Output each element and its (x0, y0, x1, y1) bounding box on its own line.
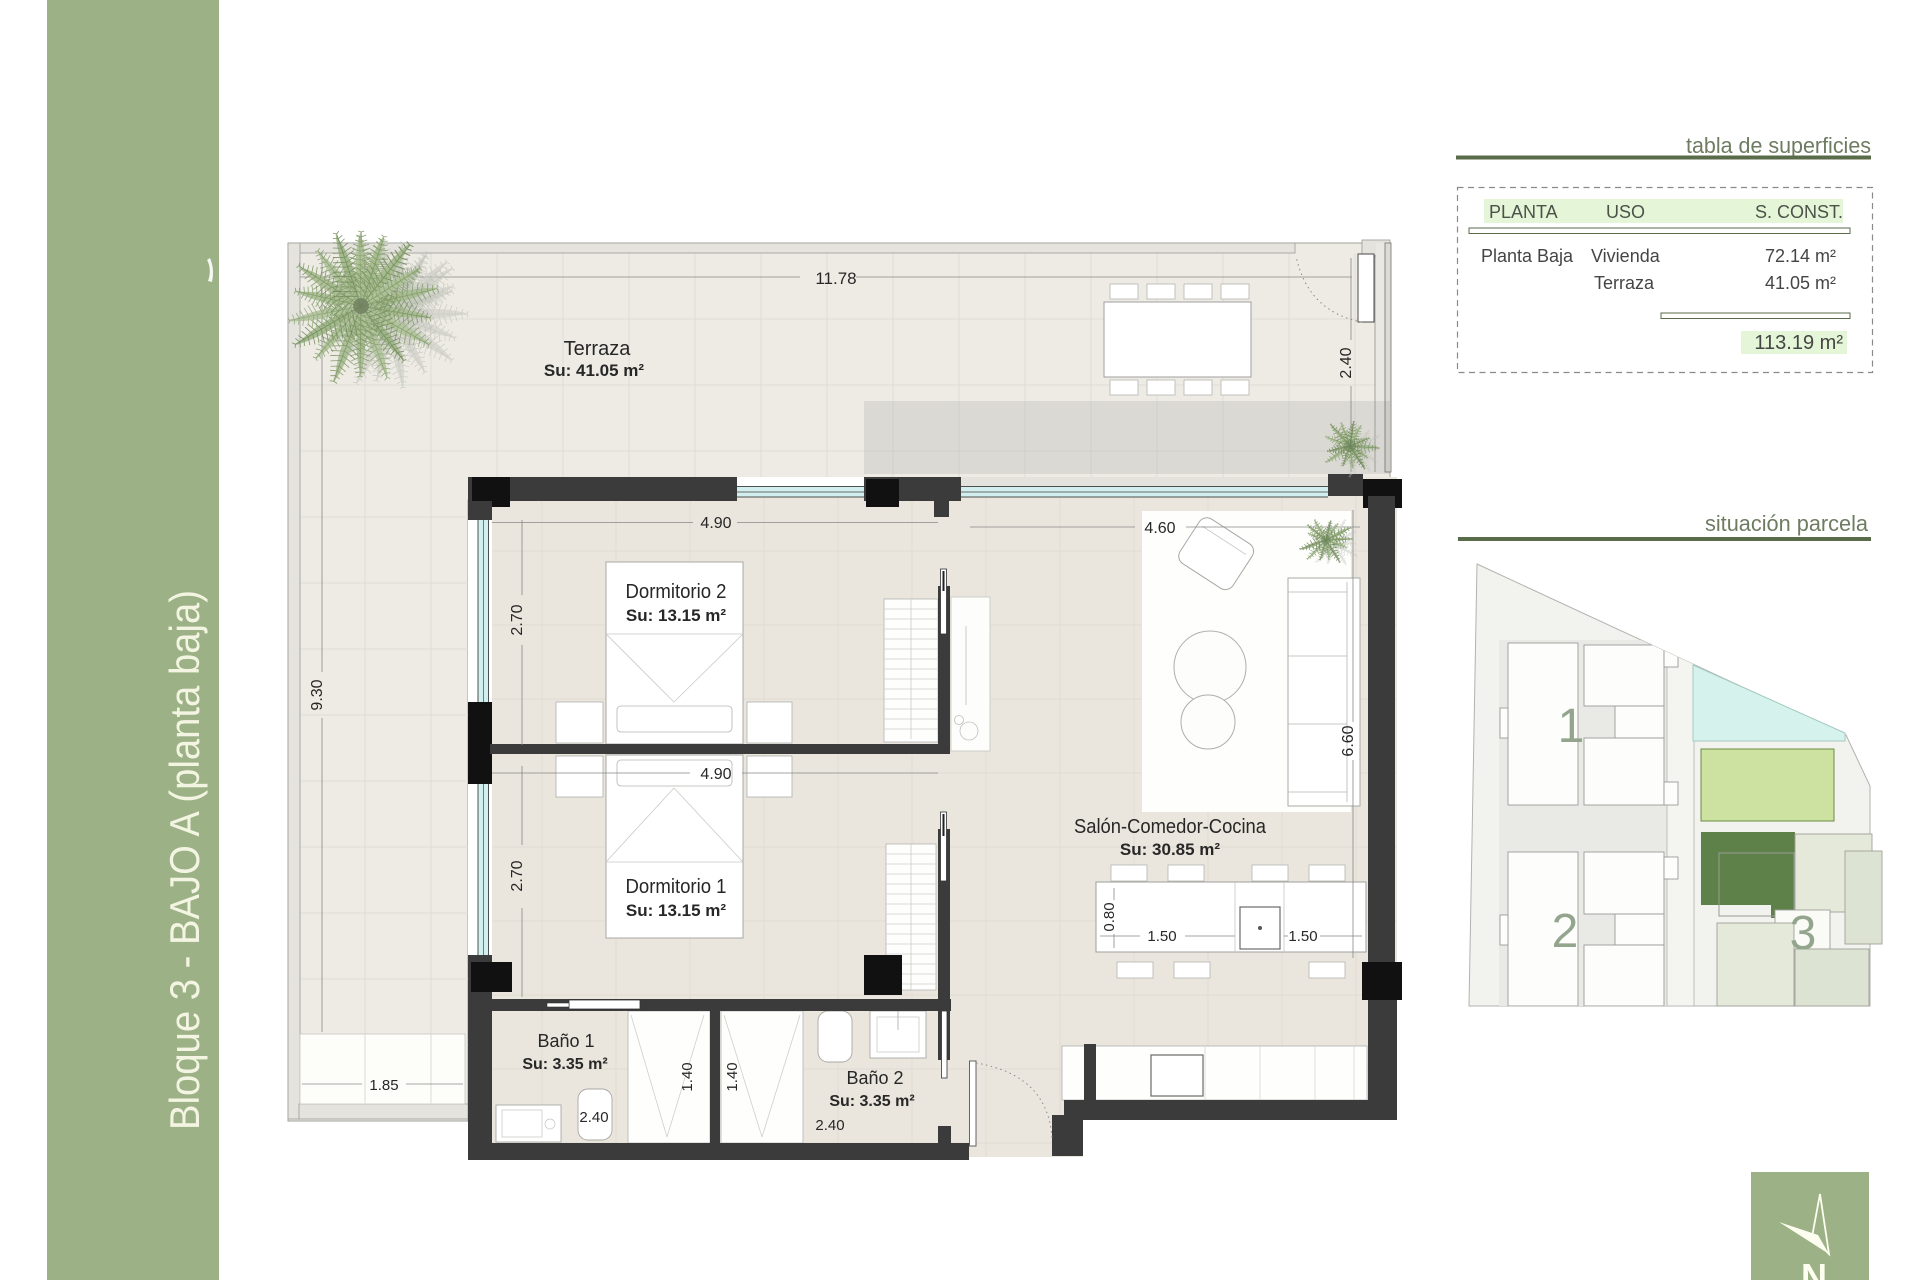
svg-text:2.40: 2.40 (579, 1109, 608, 1126)
svg-text:Dormitorio 2: Dormitorio 2 (626, 581, 727, 603)
svg-text:Baño 1: Baño 1 (537, 1031, 594, 1051)
svg-text:Su: 30.85 m²: Su: 30.85 m² (1120, 840, 1220, 859)
svg-text:Su: 3.35 m²: Su: 3.35 m² (829, 1093, 914, 1110)
svg-text:3: 3 (1790, 907, 1817, 960)
svg-text:N: N (1801, 1256, 1827, 1280)
svg-text:Salón-Comedor-Cocina: Salón-Comedor-Cocina (1074, 816, 1267, 838)
svg-text:Vivienda: Vivienda (1591, 246, 1661, 266)
svg-text:4.90: 4.90 (700, 515, 731, 532)
svg-text:1.85: 1.85 (369, 1077, 398, 1094)
svg-text:2.40: 2.40 (815, 1117, 844, 1134)
svg-text:72.14 m²: 72.14 m² (1765, 246, 1836, 266)
svg-text:2: 2 (1552, 905, 1579, 958)
svg-text:USO: USO (1606, 202, 1645, 222)
svg-text:1.40: 1.40 (679, 1062, 696, 1091)
svg-text:2.40: 2.40 (1338, 347, 1355, 378)
svg-text:Planta Baja: Planta Baja (1481, 246, 1574, 266)
svg-text:1.50: 1.50 (1288, 928, 1317, 945)
svg-text:Terraza: Terraza (1594, 273, 1655, 293)
svg-text:1.40: 1.40 (724, 1062, 741, 1091)
svg-text:4.90: 4.90 (700, 766, 731, 783)
svg-text:113.19 m²: 113.19 m² (1754, 332, 1843, 354)
svg-text:2.70: 2.70 (509, 860, 526, 891)
svg-text:Su: 13.15 m²: Su: 13.15 m² (626, 606, 726, 625)
svg-text:situación parcela: situación parcela (1705, 511, 1869, 536)
svg-text:Baño 2: Baño 2 (846, 1068, 903, 1088)
svg-text:9.30: 9.30 (309, 679, 326, 710)
svg-text:PLANTA: PLANTA (1489, 202, 1558, 222)
svg-text:tabla de superficies: tabla de superficies (1686, 133, 1871, 158)
svg-text:S. CONST.: S. CONST. (1755, 202, 1843, 222)
svg-text:Su: 13.15 m²: Su: 13.15 m² (626, 901, 726, 920)
svg-text:Su: 41.05 m²: Su: 41.05 m² (544, 361, 644, 380)
svg-text:4.60: 4.60 (1144, 520, 1175, 537)
svg-text:1.50: 1.50 (1147, 928, 1176, 945)
svg-text:Dormitorio 1: Dormitorio 1 (626, 876, 727, 898)
svg-text:11.78: 11.78 (815, 269, 856, 288)
svg-text:1: 1 (1558, 700, 1585, 753)
svg-text:Terraza: Terraza (564, 338, 632, 360)
svg-text:41.05 m²: 41.05 m² (1765, 273, 1836, 293)
svg-text:Bloque 3 - BAJO A (planta baja: Bloque 3 - BAJO A (planta baja) (161, 590, 208, 1130)
svg-text:6.60: 6.60 (1340, 725, 1357, 756)
svg-text:Su: 3.35 m²: Su: 3.35 m² (522, 1056, 607, 1073)
svg-text:0.80: 0.80 (1101, 902, 1118, 931)
svg-text:2.70: 2.70 (509, 604, 526, 635)
